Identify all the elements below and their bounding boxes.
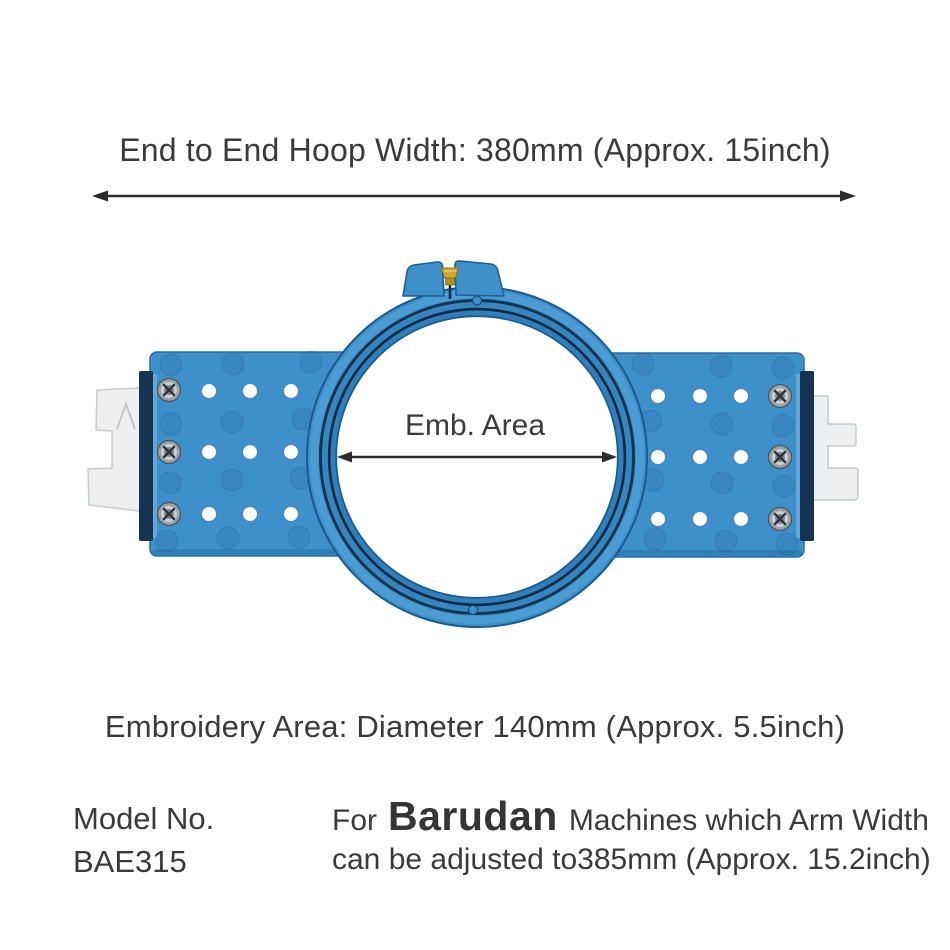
- hoop-width-label: End to End Hoop Width: 380mm (Approx. 15…: [0, 132, 950, 169]
- machine-note-rest: Machines which Arm Width: [569, 804, 929, 838]
- model-value: BAE315: [73, 840, 214, 883]
- phillips-screw-icon: [158, 503, 181, 526]
- left-sash: [139, 371, 153, 541]
- phillips-screw-icon: [769, 508, 792, 531]
- model-label: Model No.: [73, 797, 214, 840]
- product-infographic: End to End Hoop Width: 380mm (Approx. 15…: [0, 0, 950, 950]
- phillips-screw-icon: [158, 441, 181, 464]
- machine-note-prefix: For: [332, 804, 377, 838]
- ring-bump-top: [473, 296, 482, 305]
- phillips-screw-icon: [769, 385, 792, 408]
- right-sash: [800, 371, 814, 541]
- machine-note-line1: For Barudan Machines which Arm Width: [332, 793, 931, 842]
- hoop-width-arrow: [92, 191, 856, 202]
- machine-compatibility-note: For Barudan Machines which Arm Width can…: [332, 793, 931, 877]
- machine-note-line2: can be adjusted to385mm (Approx. 15.2inc…: [332, 843, 931, 877]
- ring-bump-bottom: [469, 606, 478, 615]
- clamp-tab-right: [455, 261, 504, 296]
- brand-name: Barudan: [388, 793, 558, 840]
- left-bracket: [88, 388, 140, 511]
- phillips-screw-icon: [158, 379, 181, 402]
- model-block: Model No. BAE315: [73, 797, 214, 883]
- emb-area-label: Emb. Area: [0, 409, 950, 443]
- clamp-tab-left: [403, 262, 444, 296]
- embroidery-area-label: Embroidery Area: Diameter 140mm (Approx.…: [0, 709, 950, 745]
- phillips-screw-icon: [769, 446, 792, 469]
